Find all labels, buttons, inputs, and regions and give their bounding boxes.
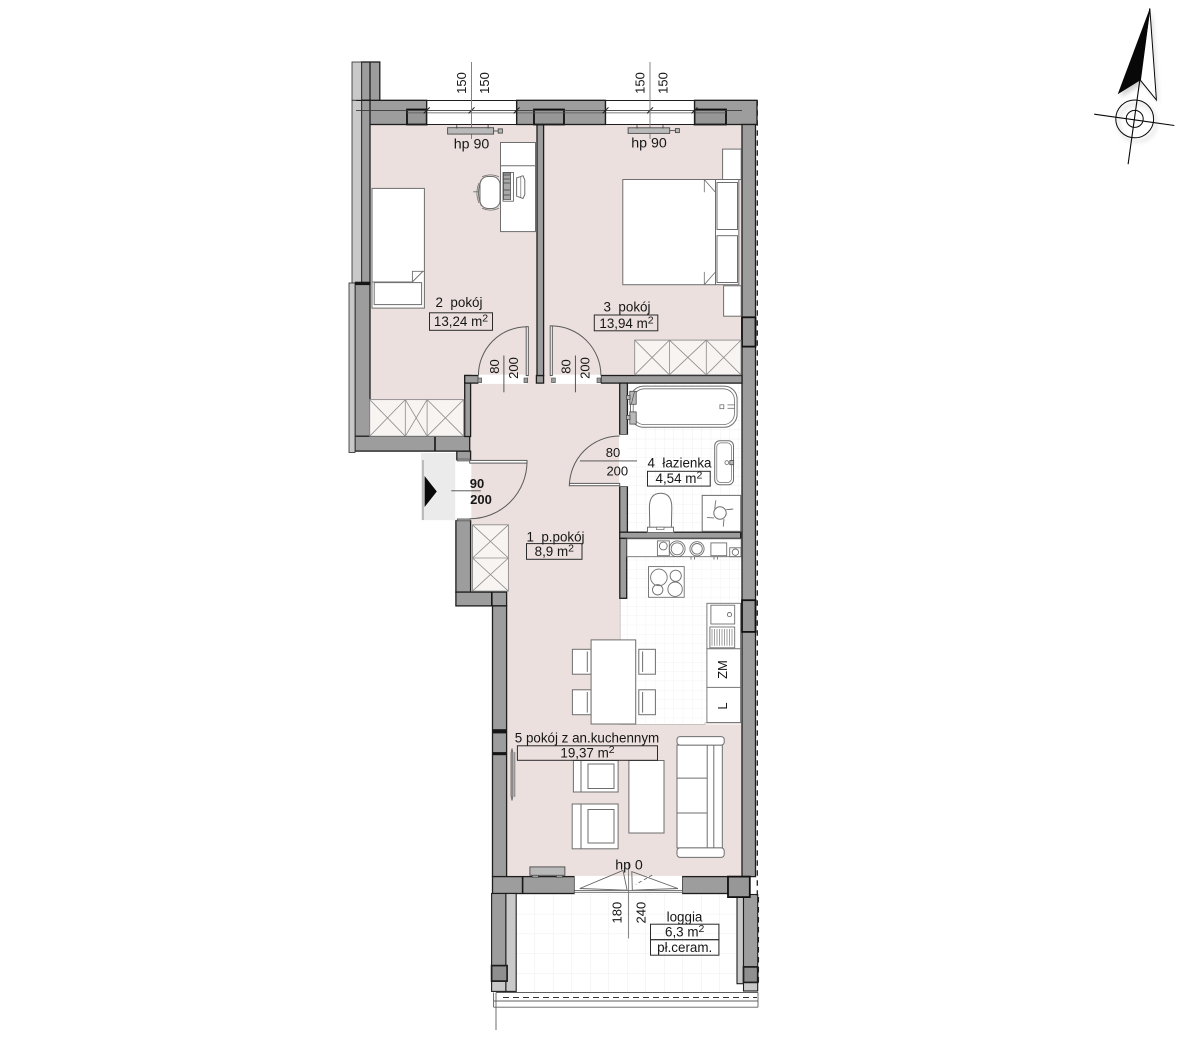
svg-text:150: 150 bbox=[633, 72, 648, 94]
svg-text:1 p.pokój: 1 p.pokój bbox=[526, 530, 584, 545]
svg-text:200: 200 bbox=[470, 492, 492, 507]
svg-text:5 pokój z an.kuchennym: 5 pokój z an.kuchennym bbox=[515, 731, 659, 746]
svg-text:4 łazienka: 4 łazienka bbox=[647, 456, 712, 471]
svg-text:ZM: ZM bbox=[715, 660, 730, 679]
svg-text:90: 90 bbox=[470, 476, 484, 491]
svg-text:200: 200 bbox=[578, 357, 593, 379]
svg-text:L: L bbox=[715, 702, 730, 709]
svg-text:2 pokój: 2 pokój bbox=[436, 295, 483, 310]
svg-text:loggia: loggia bbox=[667, 910, 703, 925]
svg-text:pł.ceram.: pł.ceram. bbox=[657, 940, 712, 955]
svg-text:13,94 m2: 13,94 m2 bbox=[599, 314, 653, 331]
svg-text:4,54 m2: 4,54 m2 bbox=[656, 470, 703, 487]
svg-text:19,37 m2: 19,37 m2 bbox=[560, 744, 614, 761]
svg-text:180: 180 bbox=[609, 902, 624, 924]
svg-text:80: 80 bbox=[487, 359, 502, 373]
svg-text:150: 150 bbox=[477, 72, 492, 94]
svg-text:200: 200 bbox=[506, 357, 521, 379]
svg-text:80: 80 bbox=[559, 359, 574, 373]
svg-text:hp 0: hp 0 bbox=[615, 858, 643, 874]
svg-text:13,24 m2: 13,24 m2 bbox=[434, 312, 488, 329]
svg-text:150: 150 bbox=[454, 72, 469, 94]
svg-text:hp 90: hp 90 bbox=[454, 136, 490, 152]
svg-text:hp 90: hp 90 bbox=[631, 136, 667, 152]
svg-text:200: 200 bbox=[606, 464, 628, 479]
svg-text:240: 240 bbox=[633, 902, 648, 924]
svg-text:80: 80 bbox=[606, 445, 620, 460]
svg-text:3 pokój: 3 pokój bbox=[604, 300, 651, 315]
svg-text:150: 150 bbox=[656, 72, 671, 94]
